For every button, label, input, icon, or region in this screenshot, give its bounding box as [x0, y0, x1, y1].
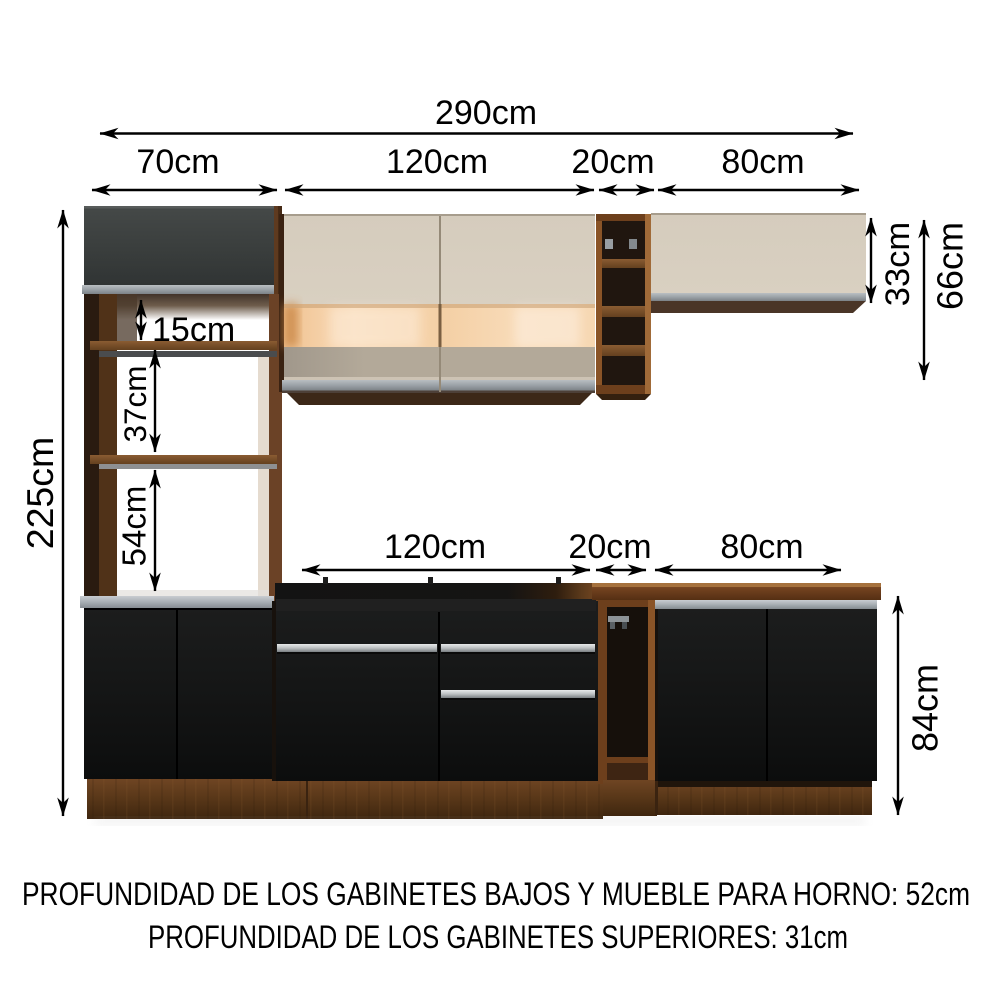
- svg-text:20cm: 20cm: [568, 528, 651, 566]
- svg-text:15cm: 15cm: [152, 311, 235, 349]
- svg-text:84cm: 84cm: [905, 664, 946, 752]
- svg-text:37cm: 37cm: [117, 365, 153, 442]
- svg-text:33cm: 33cm: [879, 222, 917, 306]
- svg-text:225cm: 225cm: [19, 437, 61, 550]
- svg-text:66cm: 66cm: [930, 222, 971, 310]
- svg-text:120cm: 120cm: [384, 528, 486, 566]
- svg-text:54cm: 54cm: [116, 486, 153, 567]
- svg-text:80cm: 80cm: [720, 528, 803, 566]
- svg-text:20cm: 20cm: [571, 143, 654, 181]
- svg-text:70cm: 70cm: [136, 143, 219, 181]
- svg-text:290cm: 290cm: [435, 94, 537, 132]
- svg-text:PROFUNDIDAD DE LOS GABINETES B: PROFUNDIDAD DE LOS GABINETES BAJOS Y MUE…: [22, 876, 970, 912]
- svg-text:PROFUNDIDAD DE LOS GABINETES S: PROFUNDIDAD DE LOS GABINETES SUPERIORES:…: [148, 919, 848, 955]
- svg-text:80cm: 80cm: [721, 143, 804, 181]
- svg-text:120cm: 120cm: [386, 143, 488, 181]
